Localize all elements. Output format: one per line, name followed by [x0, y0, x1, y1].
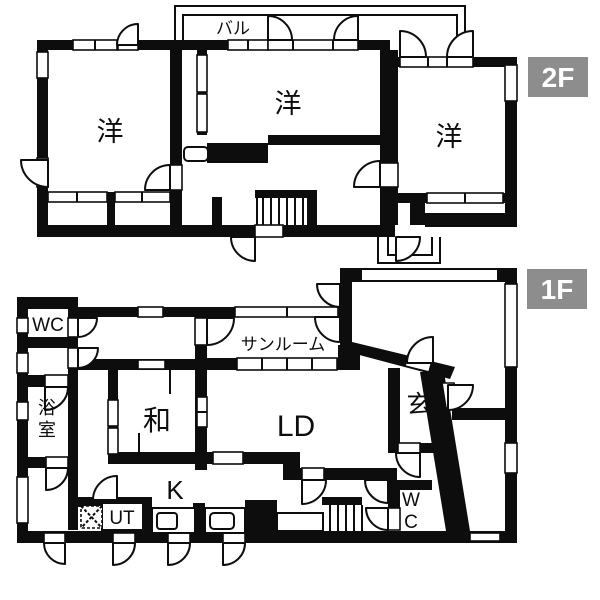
window-band-top-right	[352, 269, 505, 281]
floor-badge-2f: 2F	[528, 57, 588, 97]
stairs-2f	[257, 198, 303, 225]
balcony-label: バル	[216, 19, 250, 38]
room-label-bath-char2: 室	[38, 420, 56, 440]
room-label-sunroom: サンルーム	[241, 335, 326, 354]
floorplan-image: バル 洋 洋 洋 2F	[0, 0, 600, 600]
svg-text:2F: 2F	[542, 62, 575, 93]
room-label-west-left: 洋	[97, 117, 124, 147]
room-label-living-dining: LD	[277, 410, 315, 443]
room-label-washitsu: 和	[143, 405, 171, 436]
floorplan-svg: バル 洋 洋 洋 2F	[0, 0, 600, 600]
floor-1f-plan: WC サンルーム 浴 室 和 LD 玄 K UT W C 1F	[17, 268, 587, 565]
floor-2f-plan: バル 洋 洋 洋 2F	[21, 6, 588, 263]
porch-2f	[378, 237, 440, 263]
doors-2f	[21, 16, 473, 261]
room-label-wc-top: WC	[32, 315, 64, 336]
floor-badge-1f: 1F	[527, 269, 587, 309]
svg-text:1F: 1F	[541, 274, 574, 305]
room-label-utility: UT	[109, 508, 135, 529]
washstand-fixture	[184, 147, 208, 161]
room-label-wc-bottom-char1: W	[402, 490, 420, 511]
stairs-1f	[277, 505, 362, 531]
room-label-west-right: 洋	[436, 122, 463, 152]
room-label-entrance: 玄	[406, 391, 431, 419]
room-label-west-center: 洋	[275, 89, 302, 119]
room-label-bath-char1: 浴	[38, 398, 56, 418]
room-label-wc-bottom-char2: C	[404, 512, 418, 533]
room-label-kitchen: K	[166, 475, 184, 505]
